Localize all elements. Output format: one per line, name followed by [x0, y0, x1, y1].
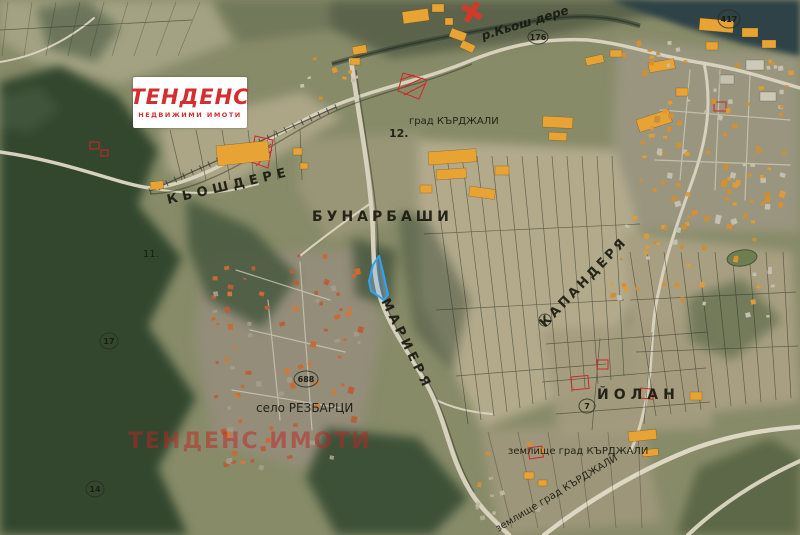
label-bunarbashi: БУНАРБАШИ [312, 209, 453, 225]
marker-11: 11. [143, 249, 159, 260]
svg-text:417: 417 [721, 15, 738, 24]
marker-12: 12. [389, 127, 409, 140]
tendens-logo: ТЕНДЕНС НЕДВИЖИМИ ИМОТИ [133, 77, 247, 128]
label-yolan: ЙОЛАН [597, 386, 680, 403]
svg-text:17: 17 [103, 337, 114, 346]
map-canvas: 417 176 688 17 14 7 12. 11. КЬОШДЕРЕ БУН… [0, 0, 800, 535]
label-selo-rezbartsi: село РЕЗБАРЦИ [256, 401, 353, 415]
svg-text:7: 7 [584, 402, 590, 411]
logo-title: ТЕНДЕНС [130, 87, 249, 108]
label-zemlishte-kardzhali: землище град КЪРДЖАЛИ [508, 446, 648, 457]
marker-176: 176 [528, 30, 548, 44]
svg-text:688: 688 [298, 375, 315, 384]
satellite-map[interactable]: 417 176 688 17 14 7 12. 11. КЬОШДЕРЕ БУН… [0, 0, 800, 535]
logo-subtitle: НЕДВИЖИМИ ИМОТИ [138, 111, 241, 119]
svg-text:14: 14 [89, 485, 101, 494]
label-grad-kardzhali: град КЪРДЖАЛИ [409, 116, 499, 127]
brand-watermark: ТЕНДЕНС ИМОТИ [128, 429, 372, 454]
svg-text:176: 176 [530, 33, 547, 42]
